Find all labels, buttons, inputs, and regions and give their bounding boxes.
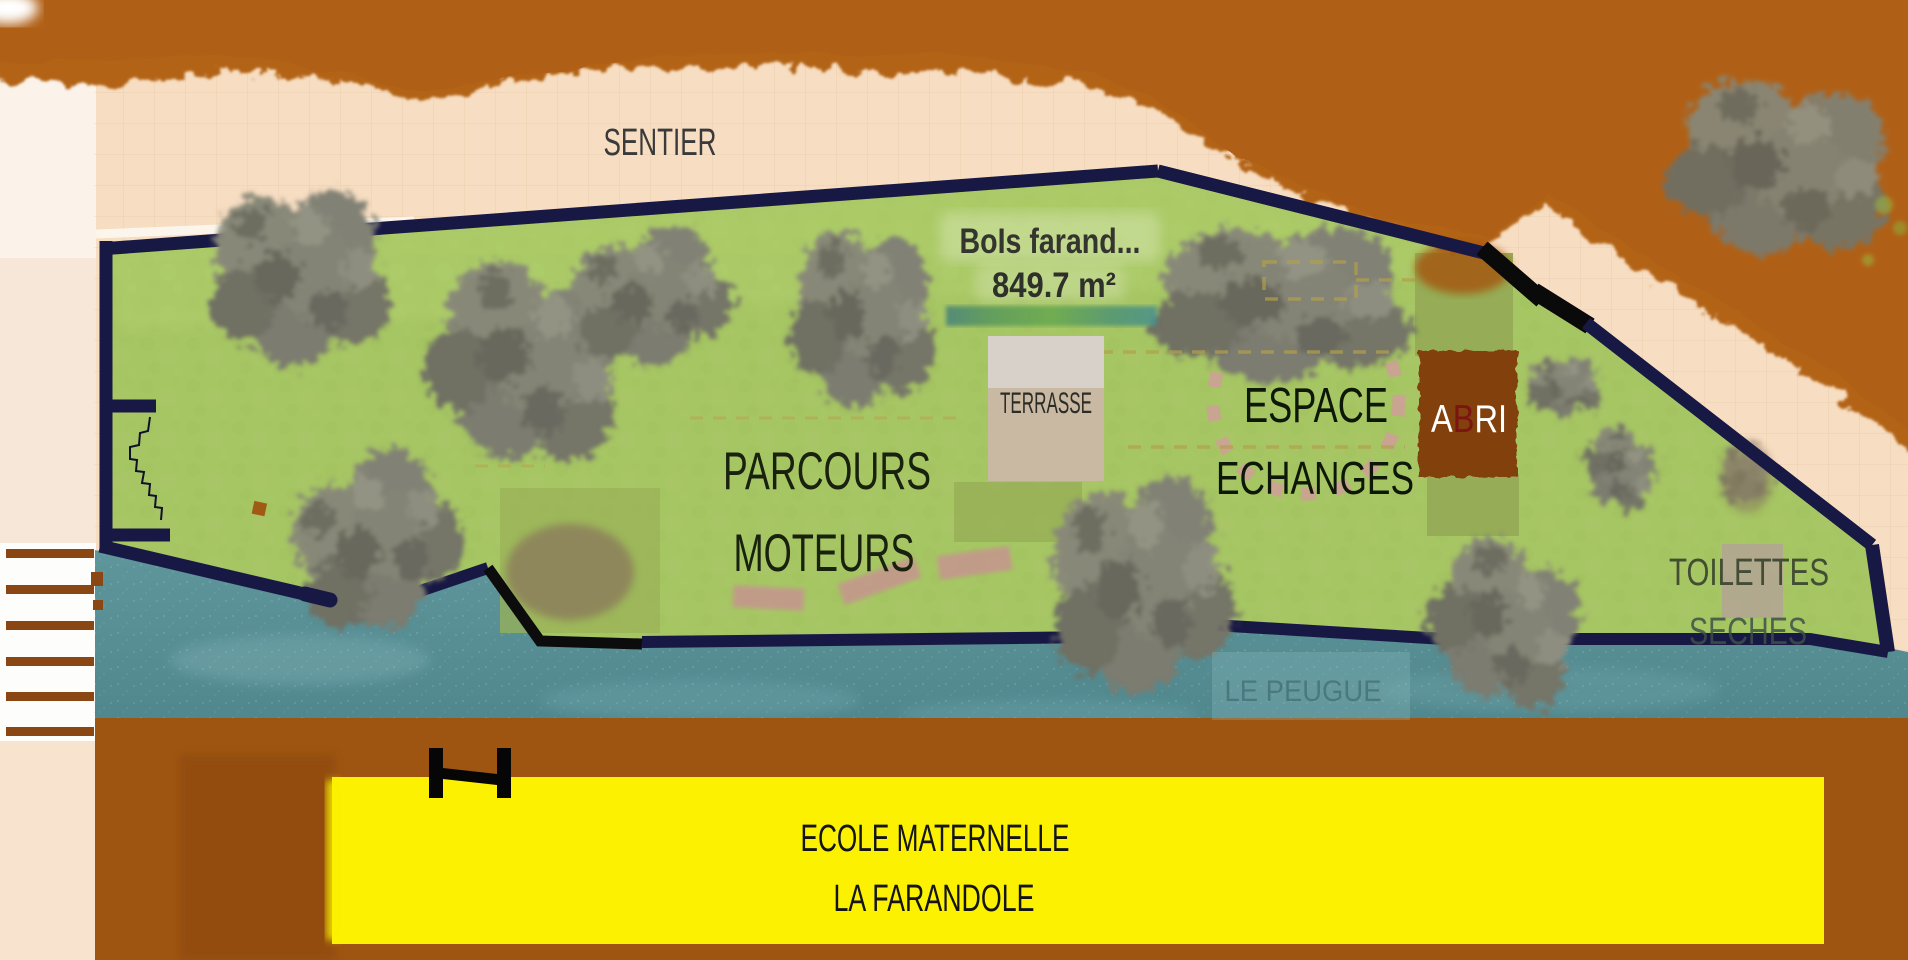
svg-text:LA FARANDOLE: LA FARANDOLE <box>834 878 1035 920</box>
svg-text:LE PEUGUE: LE PEUGUE <box>1225 675 1382 708</box>
svg-text:ESPACE: ESPACE <box>1244 379 1388 433</box>
svg-text:MOTEURS: MOTEURS <box>734 524 915 583</box>
svg-text:ECHANGES: ECHANGES <box>1216 452 1414 504</box>
svg-text:TERRASSE: TERRASSE <box>1000 387 1092 420</box>
svg-text:SECHES: SECHES <box>1689 611 1807 653</box>
svg-text:ECOLE MATERNELLE: ECOLE MATERNELLE <box>801 818 1070 860</box>
svg-text:849.7 m²: 849.7 m² <box>992 266 1116 305</box>
svg-text:BoIs farand...: BoIs farand... <box>960 222 1141 261</box>
svg-text:ABRI: ABRI <box>1431 398 1507 441</box>
svg-text:PARCOURS: PARCOURS <box>723 442 931 501</box>
svg-text:SENTIER: SENTIER <box>604 122 717 164</box>
svg-text:TOILETTES: TOILETTES <box>1669 552 1829 594</box>
